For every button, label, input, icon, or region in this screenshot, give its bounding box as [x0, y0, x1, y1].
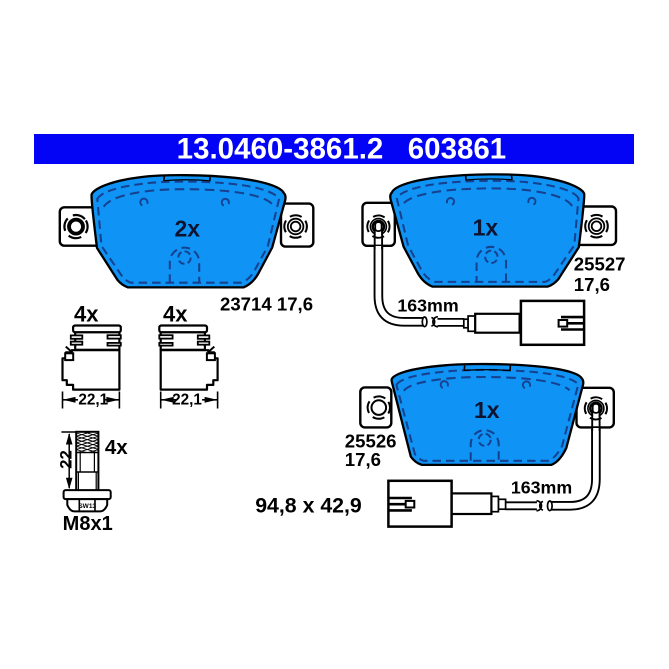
svg-text:M8x1: M8x1: [63, 513, 113, 535]
svg-text:17,6: 17,6: [574, 274, 610, 295]
svg-text:4x: 4x: [105, 436, 128, 459]
svg-text:22,1: 22,1: [78, 392, 108, 409]
svg-text:22: 22: [56, 450, 75, 469]
svg-text:603861: 603861: [408, 133, 506, 166]
svg-text:4x: 4x: [163, 302, 188, 327]
svg-text:94,8 x 42,9: 94,8 x 42,9: [255, 494, 362, 518]
svg-text:13.0460-3861.2: 13.0460-3861.2: [177, 133, 384, 166]
svg-text:22,1: 22,1: [172, 392, 202, 409]
svg-text:1x: 1x: [474, 397, 500, 423]
svg-text:23714 17,6: 23714 17,6: [220, 293, 313, 314]
svg-text:17,6: 17,6: [345, 449, 381, 470]
svg-text:163mm: 163mm: [397, 295, 458, 315]
svg-text:25527: 25527: [574, 254, 626, 275]
svg-text:163mm: 163mm: [511, 478, 572, 498]
svg-text:2x: 2x: [175, 216, 201, 242]
svg-text:SW13: SW13: [78, 503, 96, 510]
svg-text:1x: 1x: [473, 215, 499, 241]
svg-text:4x: 4x: [74, 302, 99, 327]
